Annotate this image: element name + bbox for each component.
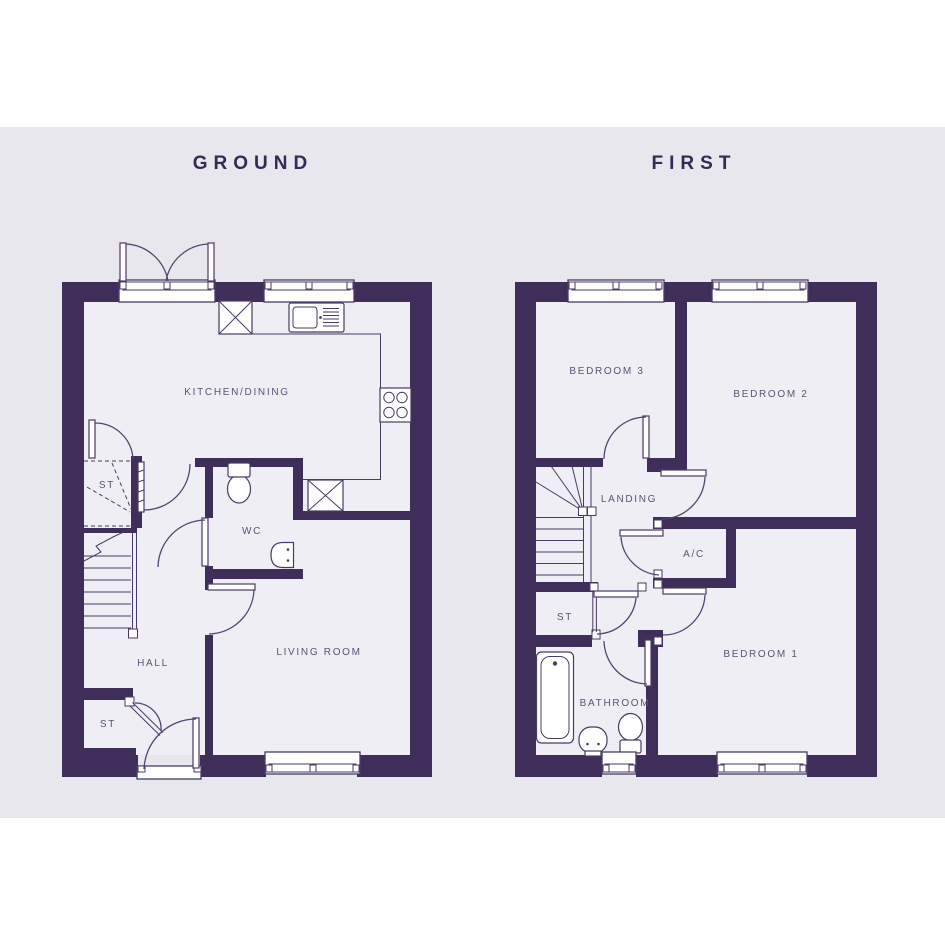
french-doors (119, 243, 215, 302)
appliance-box-icon (308, 480, 343, 511)
bathroom-window (602, 752, 636, 774)
door-leaf (89, 420, 95, 458)
room-label-bedroom2: BEDROOM 2 (733, 389, 808, 400)
room-label-landing: LANDING (601, 494, 657, 505)
door-arc (126, 244, 168, 281)
room-label-kitchen-dining: KITCHEN/DINING (184, 387, 289, 398)
door-leaf (643, 416, 649, 458)
bedroom1-window (717, 752, 807, 774)
bath-icon (537, 652, 574, 743)
door-leaf (663, 588, 706, 594)
room-label-bedroom1: BEDROOM 1 (723, 649, 798, 660)
room-label-wc: WC (242, 526, 262, 537)
door-leaf (594, 591, 638, 597)
room-label-store: ST (557, 612, 573, 623)
door-leaf (620, 530, 663, 536)
door-leaf (645, 640, 651, 686)
room-label-bedroom3: BEDROOM 3 (569, 366, 644, 377)
room-label-bathroom: BATHROOM (580, 698, 651, 709)
door-leaf (661, 470, 706, 476)
toilet-icon (228, 463, 251, 503)
room-label-living-room: LIVING ROOM (276, 647, 361, 658)
door-leaf (193, 718, 199, 768)
bedroom2-window (712, 280, 808, 302)
room-label-hall: HALL (137, 658, 169, 669)
hob-icon (380, 388, 411, 422)
hand-basin-icon (271, 543, 294, 568)
newel-post (129, 629, 138, 638)
appliance-box-icon (219, 301, 252, 334)
room-label-store-hall: ST (100, 719, 116, 730)
first-floor-plan: BEDROOM 3 BEDROOM 2 LANDING A/C ST BATHR… (515, 280, 877, 777)
floorplans-drawing: KITCHEN/DINING ST WC HALL LIVING ROOM ST (0, 0, 945, 945)
door-leaf (208, 584, 255, 590)
toilet-icon-first (619, 714, 643, 754)
door-leaf (202, 518, 208, 566)
door-arc (166, 244, 208, 281)
newel-post (588, 507, 597, 516)
room-label-store-understairs: ST (99, 480, 115, 491)
floorplan-page: GROUND FIRST (0, 0, 945, 945)
room-label-airing-cupboard: A/C (683, 549, 705, 560)
kitchen-sink-icon (289, 303, 344, 332)
door-leaf (138, 462, 144, 512)
kitchen-window (264, 280, 354, 302)
door-leaf (120, 243, 126, 281)
living-room-window (265, 752, 360, 774)
ground-floor-plan: KITCHEN/DINING ST WC HALL LIVING ROOM ST (62, 243, 432, 779)
bedroom3-window (568, 280, 664, 302)
newel-post (579, 507, 588, 516)
door-leaf (208, 243, 214, 281)
